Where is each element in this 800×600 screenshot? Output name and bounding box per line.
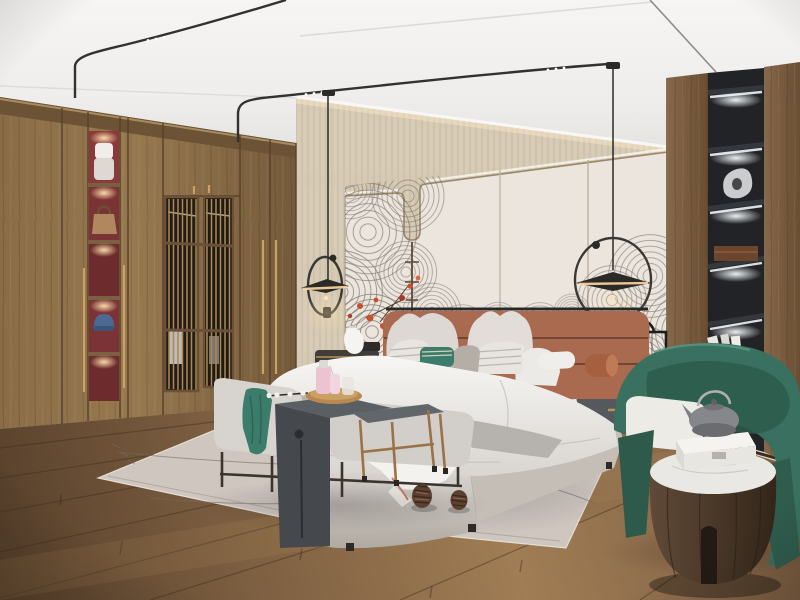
- bedroom-render: [0, 0, 800, 600]
- bedroom-photo: [0, 0, 800, 600]
- vignette-overlay: [0, 0, 800, 600]
